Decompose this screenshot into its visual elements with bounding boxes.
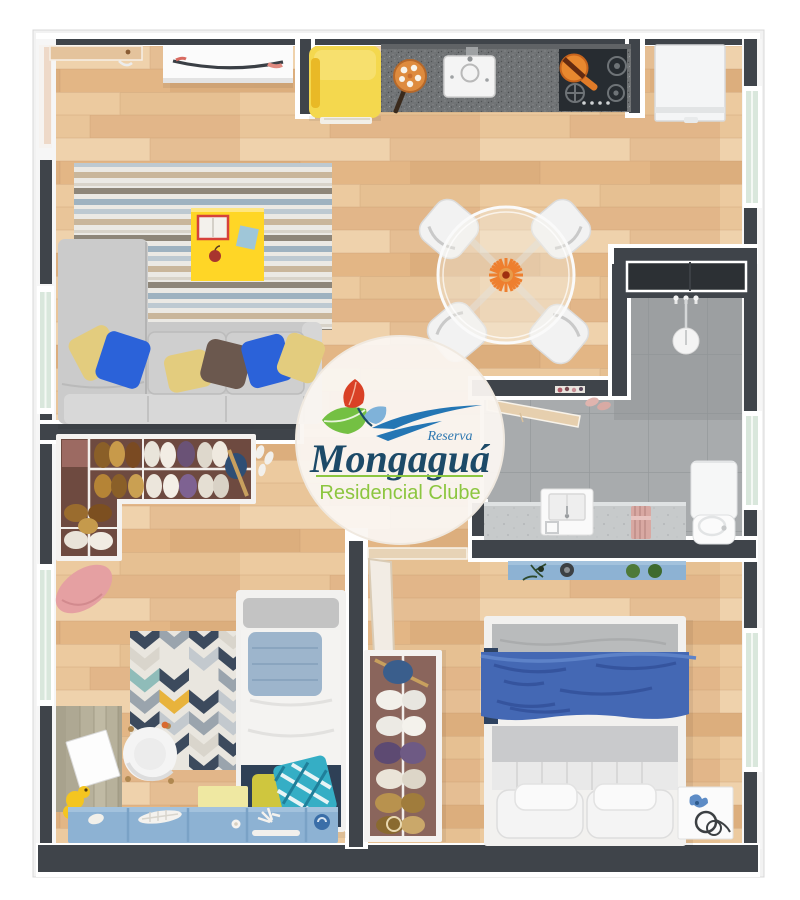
svg-text:Mongaguá: Mongaguá [309, 436, 491, 481]
svg-text:Residencial Clube: Residencial Clube [319, 482, 480, 504]
